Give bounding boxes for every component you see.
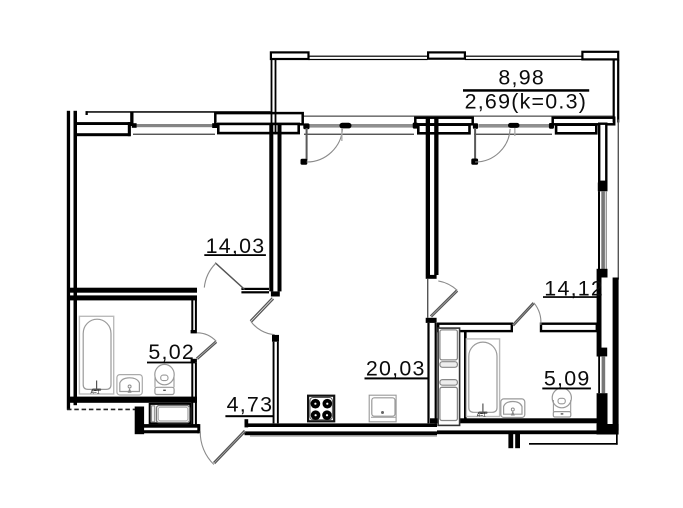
svg-text:A=1: A=1 xyxy=(477,413,486,419)
svg-text:8,98: 8,98 xyxy=(498,66,545,90)
svg-text:5,02: 5,02 xyxy=(148,340,195,364)
svg-text:4,73: 4,73 xyxy=(227,393,274,417)
svg-text:A=1: A=1 xyxy=(91,390,100,396)
svg-text:5,09: 5,09 xyxy=(544,367,591,391)
svg-text:20,03: 20,03 xyxy=(366,357,426,381)
svg-text:2,69(k=0.3): 2,69(k=0.3) xyxy=(465,89,588,113)
